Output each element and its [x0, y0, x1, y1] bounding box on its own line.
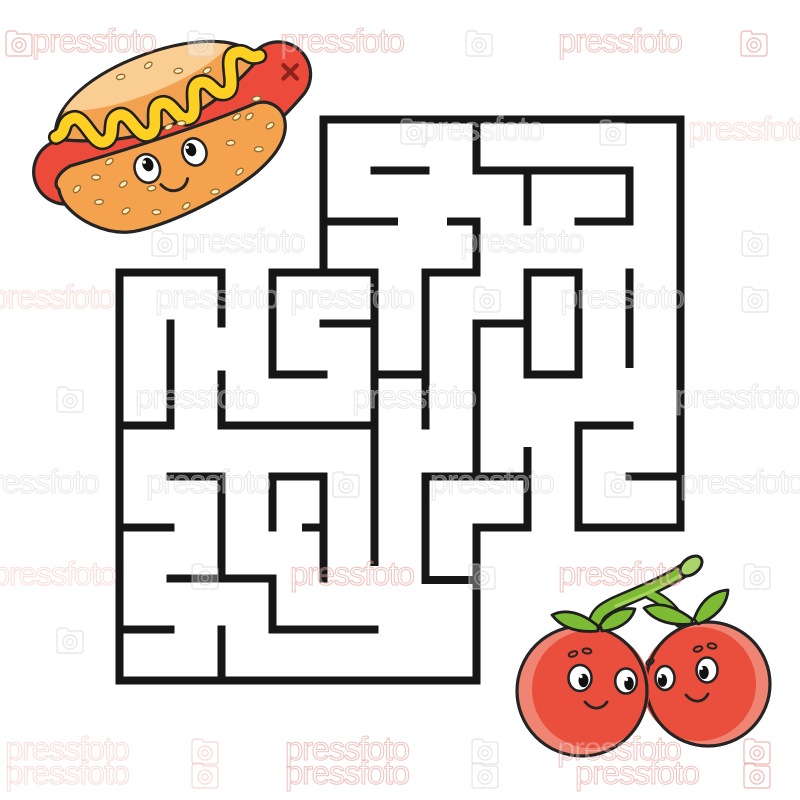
svg-text:pressfoto: pressfoto — [0, 555, 117, 592]
svg-text:pressfoto: pressfoto — [280, 22, 405, 59]
svg-text:pressfoto: pressfoto — [0, 463, 100, 500]
svg-text:pressfoto: pressfoto — [290, 555, 415, 592]
svg-text:pressfoto: pressfoto — [0, 278, 115, 315]
svg-text:pressfoto: pressfoto — [155, 278, 280, 315]
svg-text:pressfoto: pressfoto — [680, 463, 800, 500]
svg-text:pressfoto: pressfoto — [285, 754, 410, 791]
svg-text:pressfoto: pressfoto — [181, 222, 306, 259]
svg-text:pressfoto: pressfoto — [352, 378, 477, 415]
svg-text:pressfoto: pressfoto — [420, 110, 545, 147]
svg-text:pressfoto: pressfoto — [32, 22, 157, 59]
svg-text:pressfoto: pressfoto — [460, 222, 585, 259]
svg-text:pressfoto: pressfoto — [560, 278, 685, 315]
svg-text:pressfoto: pressfoto — [688, 110, 800, 147]
svg-text:pressfoto: pressfoto — [290, 278, 415, 315]
svg-text:pressfoto: pressfoto — [430, 463, 555, 500]
svg-text:pressfoto: pressfoto — [675, 378, 800, 415]
svg-text:pressfoto: pressfoto — [5, 754, 130, 791]
svg-text:pressfoto: pressfoto — [135, 378, 260, 415]
svg-text:pressfoto: pressfoto — [146, 463, 271, 500]
svg-text:pressfoto: pressfoto — [558, 555, 683, 592]
svg-text:pressfoto: pressfoto — [575, 754, 700, 791]
svg-text:pressfoto: pressfoto — [558, 22, 683, 59]
